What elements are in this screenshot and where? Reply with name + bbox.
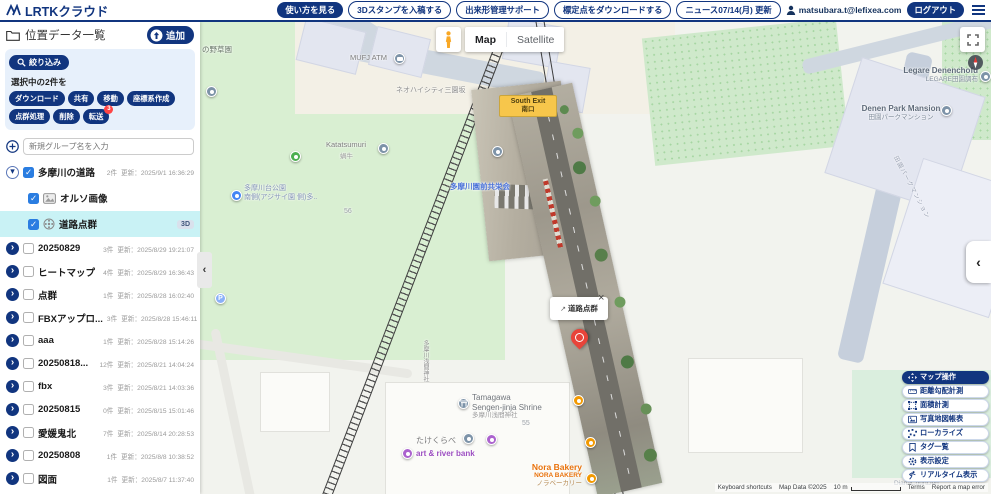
poi-pin[interactable] — [980, 71, 991, 82]
checkbox-unchecked[interactable] — [23, 243, 34, 254]
add-button[interactable]: 追加 — [147, 26, 194, 44]
map-data-text: Map Data ©2025 — [779, 484, 827, 491]
action-row-2: 点群処理 削除 転送3 — [9, 109, 191, 124]
group-row[interactable]: › ヒートマップ 4件更新：2025/8/29 16:36:43 — [0, 260, 200, 283]
checkbox-unchecked[interactable] — [23, 473, 34, 484]
group-row[interactable]: › 愛媛鬼北 7件更新：2025/8/14 20:28:53 — [0, 421, 200, 444]
map-label: Nora Bakery NORA BAKERY ノラベーカリー — [500, 462, 582, 488]
map-label: 多摩川浅間神社 — [421, 340, 430, 410]
tool-realtime-display[interactable]: リアルタイム表示 — [902, 469, 989, 482]
art-poi-icon[interactable] — [486, 434, 497, 445]
layer-row-ortho-image[interactable]: ✓ オルソ画像 — [0, 185, 200, 211]
tooltip-close-icon[interactable]: × — [598, 293, 604, 304]
map-label: Katatsumuri — [326, 140, 366, 149]
notification-badge: 3 — [104, 105, 113, 114]
checkbox-unchecked[interactable] — [23, 289, 34, 300]
checkbox-unchecked[interactable] — [23, 381, 34, 392]
app-logo: LRTKクラウド — [6, 1, 108, 20]
parking-icon[interactable]: P — [215, 293, 226, 304]
folder-icon — [6, 30, 20, 41]
pointcloud-icon — [43, 218, 55, 230]
selection-panel: 絞り込み 選択中の2件を ダウンロード 共有 移動 座標系作成 点群処理 削除 … — [5, 49, 195, 130]
sidebar-header: 位置データ一覧 追加 — [0, 22, 200, 48]
map-label: 多摩川園前共栄会 — [450, 181, 510, 192]
mountain-logo-icon — [6, 4, 21, 16]
user-icon — [786, 5, 796, 15]
group-row[interactable]: › 点群 1件更新：2025/8/28 16:02:40 — [0, 283, 200, 306]
chevron-down-icon[interactable]: ▾ — [6, 166, 19, 179]
chevron-right-icon[interactable]: › — [6, 265, 19, 278]
scale-bar: 10 m — [834, 484, 901, 491]
dekigata-support-button[interactable]: 出来形管理サポート — [456, 1, 549, 19]
fullscreen-button[interactable] — [960, 27, 985, 52]
group-row[interactable]: › 多摩川定期... 44件更新：2025/8/6 17:36:45 — [0, 490, 200, 494]
map-label: 55 — [522, 420, 530, 427]
map-type-control: Map Satellite — [465, 27, 564, 52]
map-label: Tamagawa Sengen-jinja Shrine 多摩川浅間神社 — [472, 393, 542, 420]
tab-map[interactable]: Map — [465, 34, 506, 46]
move-icon — [908, 373, 917, 382]
restaurant-icon[interactable] — [573, 395, 584, 406]
pointcloud-process-button[interactable]: 点群処理 — [9, 109, 50, 124]
pegman-control[interactable] — [436, 27, 461, 52]
chevron-right-icon[interactable]: › — [6, 357, 19, 370]
chevron-left-icon: ‹ — [203, 264, 207, 276]
green-area — [642, 22, 849, 166]
chevron-right-icon[interactable]: › — [6, 472, 19, 485]
chevron-right-icon[interactable]: › — [6, 449, 19, 462]
group-row[interactable]: › 20250818... 12件更新：2025/8/21 14:04:24 — [0, 352, 200, 375]
filter-button[interactable]: 絞り込み — [9, 55, 69, 70]
group-row[interactable]: › 20250815 0件更新：2025/8/15 15:01:46 — [0, 398, 200, 421]
3d-stamp-submit-button[interactable]: 3Dスタンプを入稿する — [348, 1, 451, 19]
tool-display-settings[interactable]: 表示設定 — [902, 455, 989, 468]
group-row[interactable]: › 20250808 1件更新：2025/8/8 10:38:52 — [0, 444, 200, 467]
image-icon — [43, 193, 56, 204]
tool-area-measure[interactable]: 面積計測 — [902, 399, 989, 412]
map-label: 蝸牛 — [340, 150, 353, 160]
chevron-right-icon[interactable]: › — [6, 380, 19, 393]
tool-map-operate[interactable]: マップ操作 — [902, 371, 989, 384]
checkbox-unchecked[interactable] — [23, 312, 34, 323]
chevron-right-icon[interactable]: › — [6, 288, 19, 301]
map-label: MUFJ ATM — [350, 53, 387, 62]
map-canvas[interactable]: Map Satellite の野草園 MUFJ ATM ネオハイシティ三園坂 K… — [200, 22, 991, 494]
shrine-icon[interactable] — [458, 398, 469, 409]
user-email: matsubara.t@lefixea.com — [799, 5, 902, 15]
map-label: ネオハイシティ三園坂 — [396, 85, 465, 95]
ruler-icon — [908, 387, 917, 396]
hamburger-menu-icon[interactable] — [972, 5, 985, 15]
plus-circle-icon[interactable] — [6, 140, 19, 153]
map-label: の野草園 — [202, 44, 232, 55]
atm-icon[interactable] — [394, 53, 405, 64]
compass-icon[interactable] — [968, 55, 983, 70]
building — [688, 358, 803, 453]
checkbox-unchecked[interactable] — [23, 266, 34, 277]
poi-pin[interactable] — [463, 433, 474, 444]
checkbox-unchecked[interactable] — [23, 427, 34, 438]
map-label: 多摩川台公園南側(アジサイ園 側)多.. — [244, 185, 317, 203]
tool-photo-map[interactable]: 写真地図帳表 — [902, 413, 989, 426]
chevron-right-icon[interactable]: › — [6, 242, 19, 255]
pegman-icon — [444, 31, 453, 48]
layer-row-road-pointcloud[interactable]: ✓ 道路点群 3D — [0, 211, 200, 237]
news-button[interactable]: ニュース07/14(月) 更新 — [676, 1, 780, 19]
fullscreen-icon — [967, 34, 979, 46]
chevron-right-icon[interactable]: › — [6, 403, 19, 416]
action-row-1: ダウンロード 共有 移動 座標系作成 — [9, 91, 191, 106]
user-account[interactable]: matsubara.t@lefixea.com — [786, 5, 902, 15]
coordinate-system-button[interactable]: 座標系作成 — [127, 91, 175, 106]
group-row[interactable]: › FBXアップロ... 3件更新：2025/8/28 15:46:11 — [0, 306, 200, 329]
selection-count-text: 選択中の2件を — [11, 76, 189, 88]
checkbox-checked[interactable]: ✓ — [28, 193, 39, 204]
chevron-right-icon[interactable]: › — [6, 311, 19, 324]
poi-pin[interactable] — [941, 105, 952, 116]
checkbox-unchecked[interactable] — [23, 404, 34, 415]
map-label: Denen Park Mansion 田園パークマンション — [851, 104, 951, 121]
tag-icon — [908, 443, 917, 452]
poi-pin[interactable] — [492, 146, 503, 157]
tab-satellite[interactable]: Satellite — [507, 34, 564, 46]
new-group-row — [6, 138, 194, 155]
top-bar: LRTKクラウド 使い方を見る 3Dスタンプを入稿する 出来形管理サポート 標定… — [0, 0, 991, 22]
app-title: LRTKクラウド — [25, 1, 108, 20]
checkbox-unchecked[interactable] — [23, 358, 34, 369]
report-error-link[interactable]: Report a map error — [932, 484, 985, 491]
tooltip-label: 道路点群 — [568, 303, 598, 314]
localize-icon — [908, 429, 917, 438]
checkbox-checked[interactable]: ✓ — [28, 219, 39, 230]
map-label: 56 — [344, 208, 352, 215]
keyboard-shortcuts-link[interactable]: Keyboard shortcuts — [718, 484, 772, 491]
download-button[interactable]: ダウンロード — [9, 91, 65, 106]
group-row[interactable]: › 20250829 3件更新：2025/8/29 19:21:07 — [0, 237, 200, 260]
restaurant-icon[interactable] — [585, 437, 596, 448]
poi-pin[interactable] — [378, 143, 389, 154]
gear-icon — [908, 457, 917, 466]
group-list: ▾ ✓ 多摩川の道路 2件更新：2025/9/1 16:36:29 ✓ オルソ画… — [0, 159, 200, 494]
art-poi-icon[interactable] — [402, 448, 413, 459]
3d-badge[interactable]: 3D — [177, 220, 194, 229]
chevron-right-icon[interactable]: › — [6, 334, 19, 347]
transfer-button[interactable]: 転送3 — [83, 109, 110, 124]
right-panel-expand-handle[interactable]: ‹ — [966, 241, 991, 283]
external-link-icon: ↗ — [560, 305, 566, 313]
group-row-tamagawa-road[interactable]: ▾ ✓ 多摩川の道路 2件更新：2025/9/1 16:36:29 — [0, 159, 200, 185]
share-button[interactable]: 共有 — [68, 91, 95, 106]
logout-button[interactable]: ログアウト — [907, 2, 965, 18]
map-tool-panel: マップ操作 距離勾配計測 面積計測 写真地図帳表 ローカライズ タグ一覧 — [902, 371, 989, 482]
search-icon — [17, 58, 26, 67]
building — [260, 372, 330, 432]
upload-circle-icon — [150, 29, 163, 42]
sidebar-title: 位置データ一覧 — [25, 27, 142, 43]
chevron-right-icon[interactable]: › — [6, 426, 19, 439]
top-nav: 使い方を見る 3Dスタンプを入稿する 出来形管理サポート 標定点をダウンロードす… — [277, 1, 985, 19]
checkbox-unchecked[interactable] — [23, 450, 34, 461]
photo-map-icon — [908, 415, 917, 424]
group-row[interactable]: › aaa 1件更新：2025/8/28 15:14:26 — [0, 329, 200, 352]
tool-distance-measure[interactable]: 距離勾配計測 — [902, 385, 989, 398]
tool-tag-list[interactable]: タグ一覧 — [902, 441, 989, 454]
checkbox-checked[interactable]: ✓ — [23, 167, 34, 178]
new-group-input[interactable] — [23, 138, 194, 155]
app-window: LRTKクラウド 使い方を見る 3Dスタンプを入稿する 出来形管理サポート 標定… — [0, 0, 991, 494]
map-label: たけくらべ — [416, 435, 456, 446]
map-label: art & river bank — [416, 449, 475, 458]
restaurant-icon[interactable] — [586, 473, 597, 484]
tool-localize[interactable]: ローカライズ — [902, 427, 989, 440]
how-to-use-button[interactable]: 使い方を見る — [277, 2, 343, 18]
checkbox-unchecked[interactable] — [23, 335, 34, 346]
sidebar-collapse-handle[interactable]: ‹ — [197, 252, 212, 288]
terms-link[interactable]: Terms — [908, 484, 925, 491]
area-icon — [908, 401, 917, 410]
map-label: Legare Denenchofu LEGARE田園調布 — [890, 66, 978, 83]
group-row[interactable]: › fbx 3件更新：2025/8/21 14:03:36 — [0, 375, 200, 398]
station-exit-label: South Exit 南口 — [499, 95, 557, 117]
delete-button[interactable]: 削除 — [53, 109, 80, 124]
map-attribution: Keyboard shortcuts Map Data ©2025 10 m T… — [715, 483, 988, 492]
chevron-left-icon: ‹ — [976, 254, 981, 270]
download-control-points-button[interactable]: 標定点をダウンロードする — [554, 1, 672, 19]
group-row[interactable]: › 図面 1件更新：2025/8/7 11:37:40 — [0, 467, 200, 490]
move-button[interactable]: 移動 — [97, 91, 124, 106]
poi-pin[interactable] — [206, 86, 217, 97]
runner-icon — [908, 471, 917, 480]
sidebar-panel: 位置データ一覧 追加 絞り込み 選択中の2件を ダウンロード 共有 移動 座標系… — [0, 22, 200, 494]
tree-poi-icon[interactable] — [290, 151, 301, 162]
park-facility-icon[interactable] — [231, 190, 242, 201]
